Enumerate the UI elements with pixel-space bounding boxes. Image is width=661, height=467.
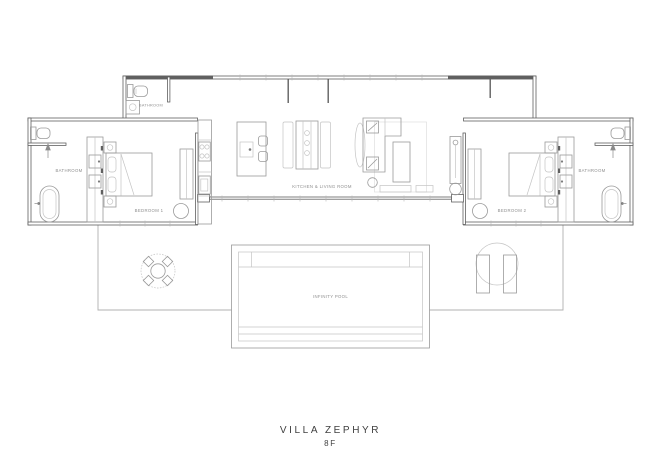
stove <box>199 142 211 161</box>
kitchen-counter <box>198 120 212 224</box>
double-bed <box>106 153 152 196</box>
kitchen-island <box>237 122 268 176</box>
chair <box>162 256 172 266</box>
kitchen: KITCHEN & LIVING ROOM <box>198 120 352 224</box>
plan-title-name: VILLA ZEPHYR <box>280 425 381 436</box>
bench <box>283 122 293 168</box>
media-console <box>380 186 433 193</box>
powder-bathroom: BATHROOM <box>126 85 163 115</box>
toilet <box>611 127 631 140</box>
lounger <box>504 255 517 293</box>
plant <box>450 183 462 195</box>
plan-title: VILLA ZEPHYR 8F <box>280 425 381 448</box>
chair <box>162 275 172 285</box>
bathroom-left-label: BATHROOM <box>55 168 82 173</box>
entry-arrow <box>611 144 616 158</box>
bathtub <box>602 186 627 222</box>
living-room <box>355 118 461 195</box>
dining-set <box>283 121 331 169</box>
round-chair <box>174 204 189 219</box>
bench <box>321 122 331 168</box>
floor-plan-svg: INFINITY POOL <box>0 0 661 467</box>
nightstand-top <box>104 142 116 153</box>
bedroom-1-label: BEDROOM 1 <box>135 208 164 213</box>
plan-title-floor: 8F <box>324 439 337 448</box>
dining-table <box>296 121 318 169</box>
bedroom-2-label: BEDROOM 2 <box>498 208 527 213</box>
coffee-table <box>393 142 410 182</box>
bathroom-right-label: BATHROOM <box>578 168 605 173</box>
pool-label: INFINITY POOL <box>313 294 348 299</box>
entry-arrow <box>46 144 51 158</box>
bathroom-right: BATHROOM <box>578 127 630 222</box>
infinity-pool: INFINITY POOL <box>232 245 430 348</box>
chair <box>143 275 153 285</box>
chair <box>143 256 153 266</box>
side-table <box>368 178 378 188</box>
bathtub <box>35 186 60 222</box>
arc-floor-lamp <box>355 123 365 167</box>
bedroom-2: BEDROOM 2 <box>468 142 557 219</box>
powder-bathroom-label: BATHROOM <box>139 104 163 108</box>
wardrobe <box>468 149 481 199</box>
shelf-column <box>450 137 461 184</box>
nightstand-bottom <box>545 196 557 207</box>
round-chair <box>473 204 488 219</box>
sun-loungers <box>476 243 518 293</box>
outdoor-dining-set <box>141 254 175 288</box>
parasol <box>476 243 518 285</box>
wardrobe <box>180 149 193 199</box>
nightstand-bottom <box>104 196 116 207</box>
vanity-right <box>558 137 574 222</box>
vanity-left <box>87 137 103 222</box>
bedroom-1: BEDROOM 1 <box>104 142 193 219</box>
washbasin <box>126 101 140 115</box>
bathroom-left: BATHROOM <box>31 127 83 222</box>
kitchen-living-label: KITCHEN & LIVING ROOM <box>292 184 352 189</box>
floor-plan-page: INFINITY POOL <box>0 0 661 467</box>
sofa <box>363 118 401 172</box>
toilet <box>31 127 51 140</box>
double-bed <box>509 153 555 196</box>
toilet <box>128 85 148 98</box>
nightstand-top <box>545 142 557 153</box>
kitchen-sink-counter <box>199 176 211 194</box>
rug <box>375 122 427 192</box>
